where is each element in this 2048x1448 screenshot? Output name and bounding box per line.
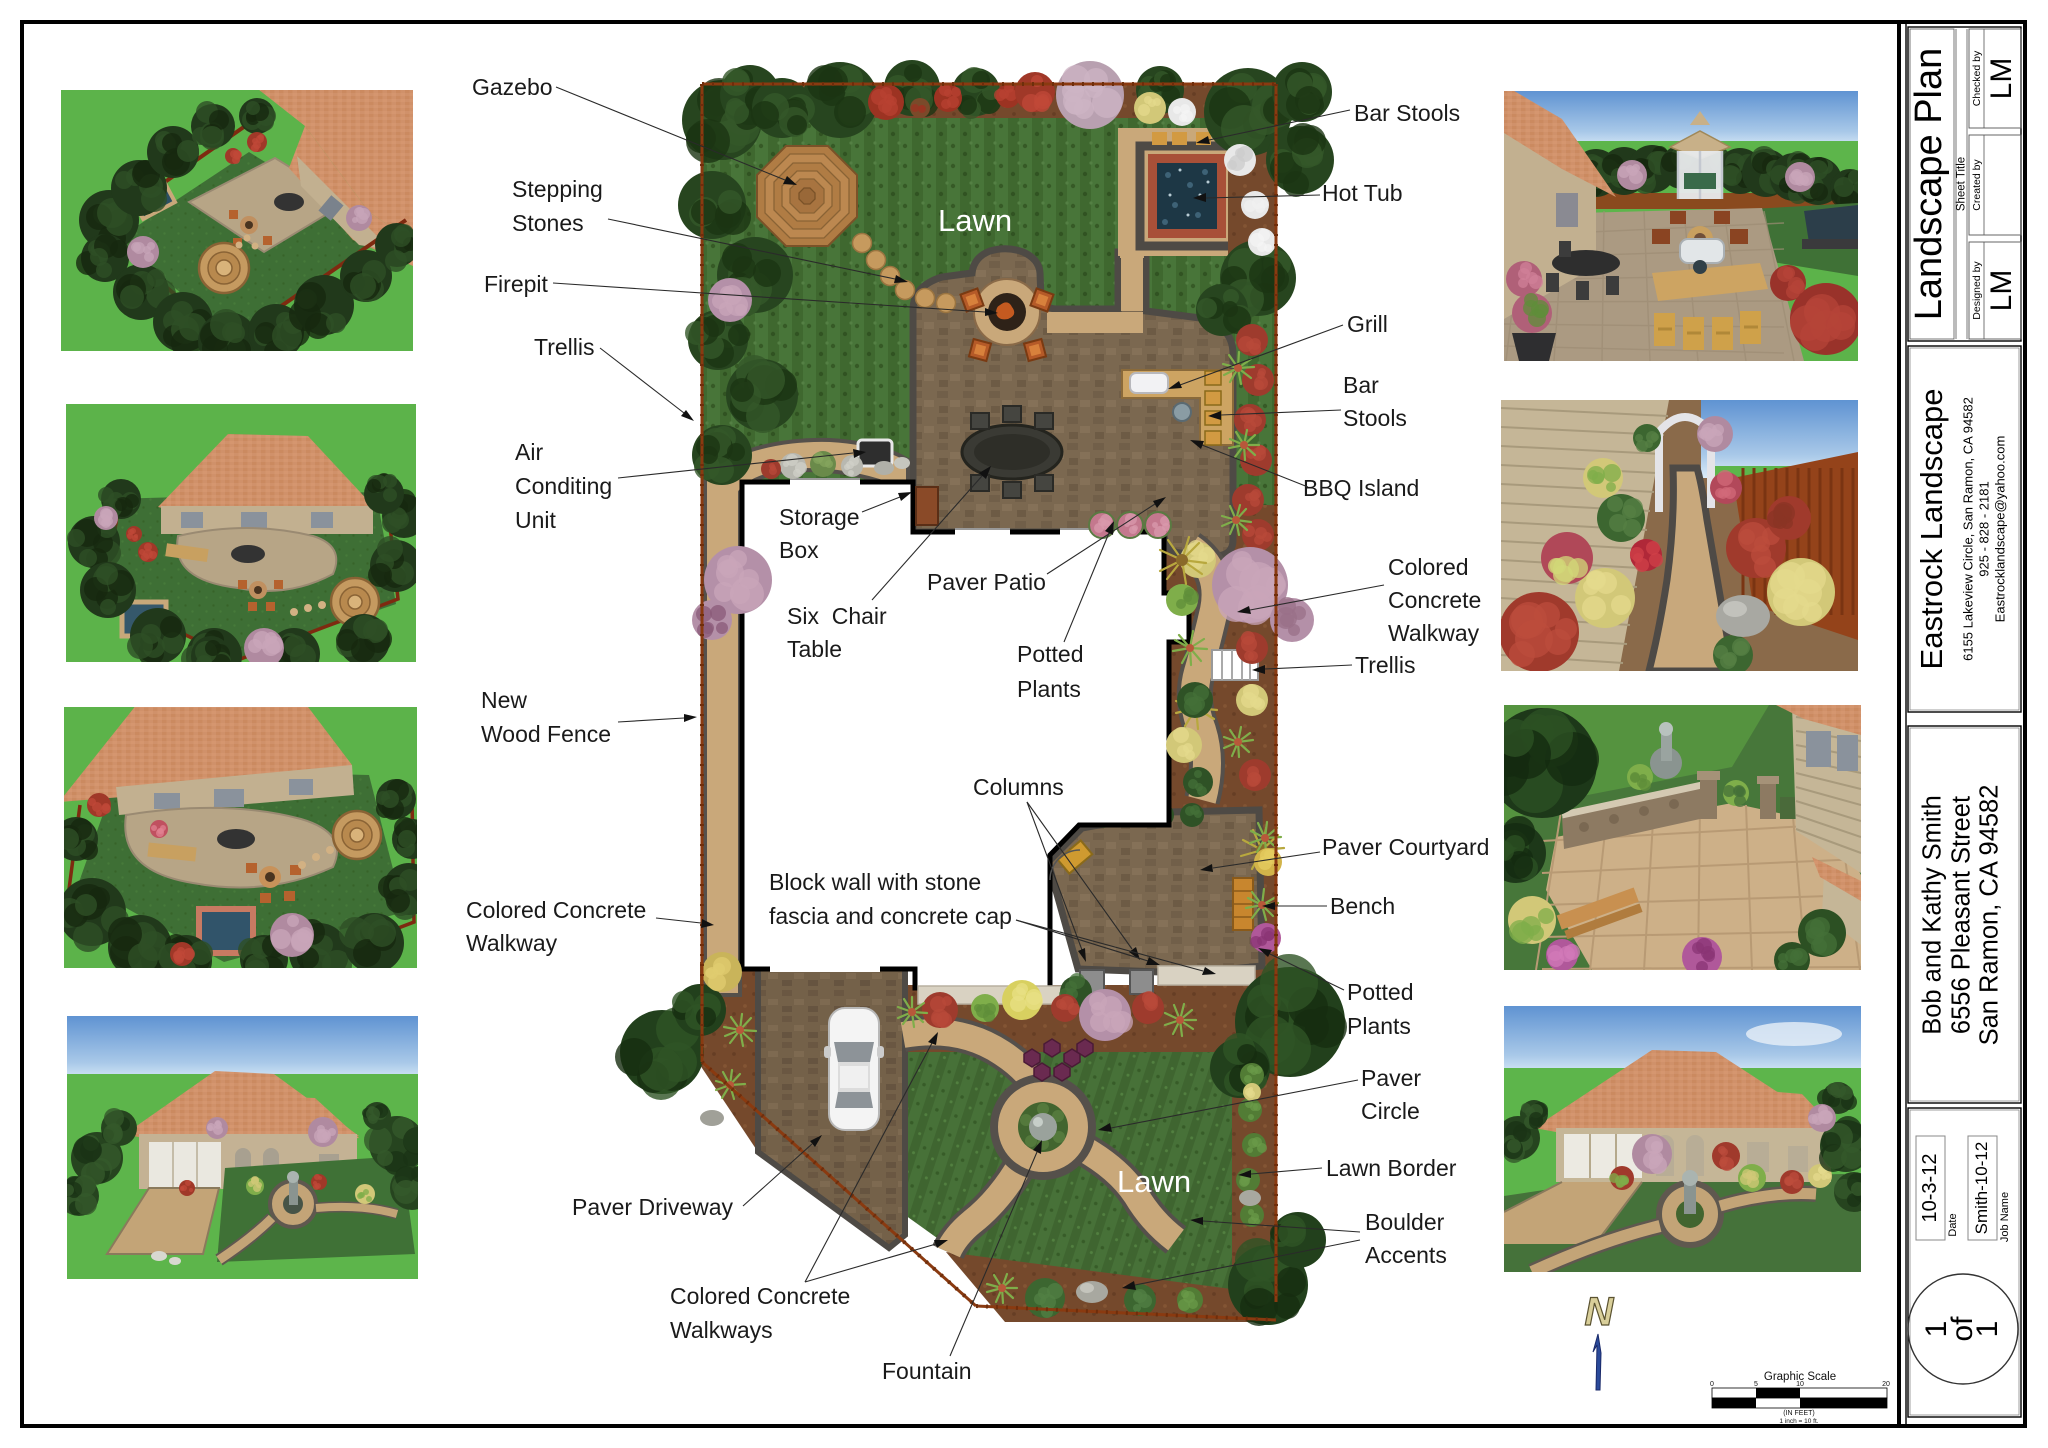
svg-text:Landscape Plan: Landscape Plan: [1908, 48, 1950, 321]
svg-text:Air: Air: [515, 439, 543, 465]
svg-text:Concrete: Concrete: [1388, 587, 1481, 613]
svg-text:Lawn: Lawn: [938, 203, 1012, 238]
svg-text:Trellis: Trellis: [1355, 652, 1415, 678]
svg-text:1 inch = 10 ft.: 1 inch = 10 ft.: [1779, 1418, 1818, 1425]
svg-text:Stones: Stones: [512, 210, 584, 236]
svg-text:Eastrock Landscape: Eastrock Landscape: [1914, 389, 1949, 670]
svg-text:Checked by: Checked by: [1971, 50, 1983, 106]
svg-text:Lawn Border: Lawn Border: [1326, 1155, 1457, 1181]
svg-text:925 - 828 - 2181: 925 - 828 - 2181: [1976, 481, 1991, 576]
svg-text:Colored Concrete: Colored Concrete: [466, 897, 646, 923]
svg-text:Walkway: Walkway: [1388, 620, 1480, 646]
svg-text:LM: LM: [1985, 58, 2018, 100]
svg-text:N: N: [1585, 1290, 1615, 1334]
svg-text:Potted: Potted: [1347, 979, 1414, 1005]
svg-text:Boulder: Boulder: [1365, 1209, 1445, 1235]
svg-text:Paver Patio: Paver Patio: [927, 569, 1046, 595]
svg-text:Stepping: Stepping: [512, 176, 603, 202]
svg-text:Walkways: Walkways: [670, 1317, 773, 1343]
svg-text:Colored Concrete: Colored Concrete: [670, 1283, 850, 1309]
svg-text:Created by: Created by: [1971, 159, 1983, 211]
svg-text:San Ramon, CA 94582: San Ramon, CA 94582: [1976, 785, 2004, 1046]
svg-text:Colored: Colored: [1388, 554, 1469, 580]
svg-text:Bob and Kathy Smith: Bob and Kathy Smith: [1919, 795, 1947, 1035]
svg-text:Gazebo: Gazebo: [472, 74, 553, 100]
svg-text:10-3-12: 10-3-12: [1919, 1154, 1941, 1223]
svg-text:Conditing: Conditing: [515, 473, 612, 499]
svg-text:Accents: Accents: [1365, 1242, 1447, 1268]
svg-text:Paver: Paver: [1361, 1065, 1421, 1091]
svg-text:Box: Box: [779, 537, 819, 563]
svg-text:Circle: Circle: [1361, 1098, 1420, 1124]
svg-text:Bar: Bar: [1343, 372, 1379, 398]
svg-text:20: 20: [1882, 1381, 1890, 1388]
svg-text:(IN FEET): (IN FEET): [1783, 1410, 1815, 1417]
svg-text:BBQ Island: BBQ Island: [1303, 475, 1419, 501]
svg-text:LM: LM: [1985, 270, 2018, 312]
svg-text:Block wall with stone: Block wall with stone: [769, 869, 981, 895]
svg-text:Firepit: Firepit: [484, 271, 549, 297]
svg-text:New: New: [481, 687, 527, 713]
svg-text:Hot Tub: Hot Tub: [1322, 180, 1403, 206]
svg-text:Columns: Columns: [973, 774, 1064, 800]
svg-text:Storage: Storage: [779, 504, 860, 530]
svg-text:6556 Pleasant Street: 6556 Pleasant Street: [1948, 796, 1976, 1034]
svg-text:1: 1: [1971, 1321, 2004, 1338]
svg-text:Date: Date: [1947, 1213, 1959, 1236]
svg-text:Smith-10-12: Smith-10-12: [1972, 1142, 1991, 1235]
svg-text:Sheet Title: Sheet Title: [1956, 157, 1968, 211]
svg-text:Designed by: Designed by: [1971, 261, 1983, 320]
svg-text:Wood Fence: Wood Fence: [481, 721, 611, 747]
svg-text:Plants: Plants: [1347, 1013, 1411, 1039]
svg-text:10: 10: [1796, 1381, 1804, 1388]
svg-text:Stools: Stools: [1343, 405, 1407, 431]
svg-text:Fountain: Fountain: [882, 1358, 972, 1384]
svg-text:Trellis: Trellis: [534, 334, 594, 360]
svg-text:0: 0: [1710, 1381, 1714, 1388]
svg-text:Six Chair: Six Chair: [787, 603, 887, 629]
svg-text:Table: Table: [787, 636, 842, 662]
svg-text:5: 5: [1754, 1381, 1758, 1388]
svg-text:Job Name: Job Name: [1999, 1192, 2011, 1242]
svg-text:Plants: Plants: [1017, 676, 1081, 702]
svg-text:fascia and concrete cap: fascia and concrete cap: [769, 903, 1012, 929]
svg-text:Paver Driveway: Paver Driveway: [572, 1194, 734, 1220]
svg-text:Unit: Unit: [515, 507, 557, 533]
svg-text:6155 Lakeview Circle, San Ramo: 6155 Lakeview Circle, San Ramon, CA 9458…: [1960, 397, 1975, 661]
svg-text:Bench: Bench: [1330, 893, 1395, 919]
svg-text:Paver Courtyard: Paver Courtyard: [1322, 834, 1489, 860]
svg-text:Walkway: Walkway: [466, 930, 558, 956]
svg-text:Eastrocklandscape@yahoo.com: Eastrocklandscape@yahoo.com: [1992, 436, 2007, 623]
svg-text:Lawn: Lawn: [1117, 1164, 1191, 1199]
svg-text:Bar Stools: Bar Stools: [1354, 100, 1460, 126]
svg-text:Grill: Grill: [1347, 311, 1388, 337]
svg-text:Potted: Potted: [1017, 641, 1084, 667]
